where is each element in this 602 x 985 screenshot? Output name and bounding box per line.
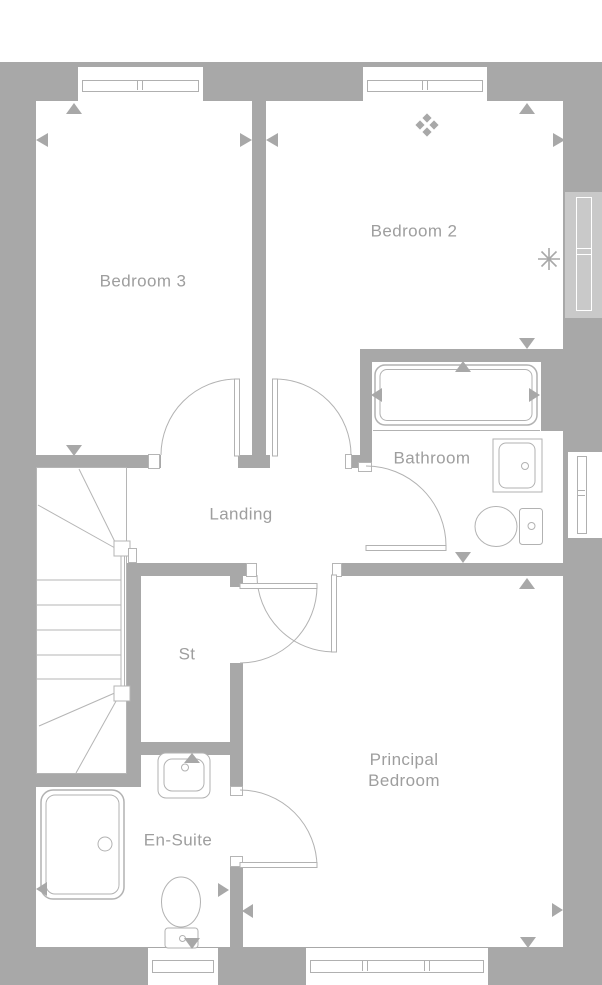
bathroom-label: Bathroom [394,447,471,468]
bedroom2-label: Bedroom 2 [371,220,458,241]
bedroom2-door [273,379,352,456]
bathroom-door [366,466,446,551]
bedroom3-door [161,379,240,456]
bathroom-toilet-icon [475,507,543,547]
staircase-icon [36,468,137,774]
dimension-arrow-icon [552,903,563,917]
dimension-arrow-icon [240,133,252,147]
ensuite-basin-icon [158,753,210,798]
bathroom-basin-icon [493,439,542,492]
shower-tray-icon [41,790,124,899]
dimension-arrow-icon [455,552,471,563]
dimension-arrow-icon [519,578,535,589]
dimension-arrow-icon [218,883,229,897]
dimension-arrow-icon [519,103,535,114]
dimension-arrow-icon [520,937,536,948]
asterisk-icon [538,248,560,270]
dimension-arrow-icon [519,338,535,349]
dimension-arrow-icon [266,133,278,147]
landing-label: Landing [209,503,272,524]
store-label: St [179,643,196,664]
dimension-arrow-icon [66,103,82,114]
bedroom3-label: Bedroom 3 [100,270,187,291]
floor-plan: Bedroom 3 Bedroom 2 Bathroom Landing St … [0,0,602,985]
dimension-arrow-icon [553,133,565,147]
ensuite-label: En-Suite [144,829,212,850]
ensuite-toilet-icon [162,877,201,948]
plan-linework [0,0,602,985]
principal-bedroom-label: Principal Bedroom [368,749,440,792]
bathtub-icon [373,365,540,431]
dimension-arrow-icon [66,445,82,456]
dimension-arrow-icon [242,904,253,918]
ensuite-door [240,790,317,868]
dimension-arrow-icon [36,133,48,147]
store-door [240,584,317,664]
diamond-cluster-icon [415,113,438,136]
